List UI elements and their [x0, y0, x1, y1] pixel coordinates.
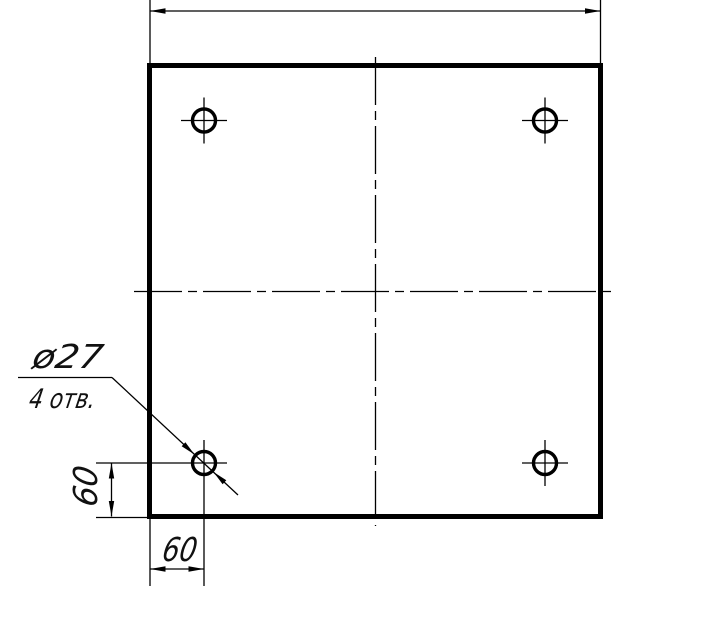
dimension-value-bottom: 60: [160, 530, 201, 569]
dimension-value-left: 60: [66, 463, 105, 510]
hole-callout: ø27 4 отв.: [18, 337, 238, 495]
hole-top-left: [181, 98, 227, 144]
callout-diameter-label: ø27: [28, 337, 106, 376]
callout-count-label: 4 отв.: [27, 384, 98, 415]
hole-bottom-right: [522, 440, 568, 486]
dimension-top-overall: [150, 0, 601, 63]
dimension-left-60: 60: [66, 463, 149, 518]
hole-top-right: [522, 98, 568, 144]
engineering-drawing-canvas: 60 60 ø27 4 отв.: [0, 0, 713, 631]
dimension-bottom-60: 60: [150, 519, 204, 586]
